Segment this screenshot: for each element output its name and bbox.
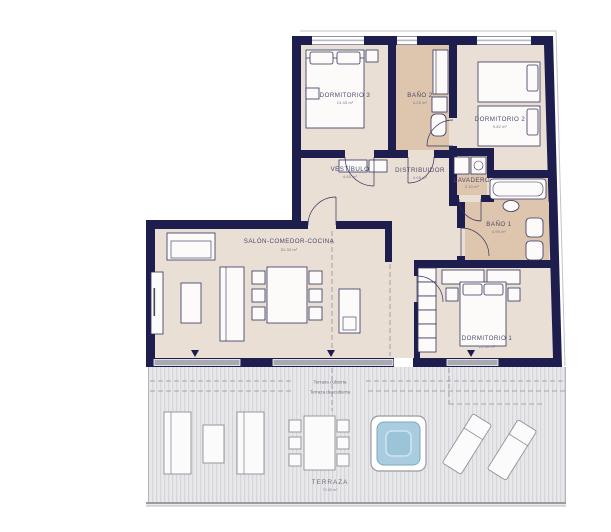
tv-icon [154,288,156,316]
terrace-front-edge [146,502,566,504]
label-bano-1: BAÑO 1 [486,221,512,228]
floor-plan-page: Terraza cubierta Terraza descubierta [0,0,611,532]
plunge-pool-icon [371,416,426,471]
label-terraza: TERRAZA [312,479,349,486]
nightstand-icon [508,288,520,301]
coffee-table-icon [181,283,201,323]
area-lavadero: 2.10 m² [465,185,480,189]
label-salon: SALÓN-COMEDOR-COCINA [244,238,335,245]
pillow-icon [310,52,333,64]
label-dormitorio-3: DORMITORIO 3 [320,92,371,99]
area-bano-2: 4.25 m² [413,101,428,105]
terrace-covered-label: Terraza cubierta [314,380,347,385]
area-dormitorio-1: 21.60 m² [479,345,496,349]
area-vestibulo: 4.65 m² [343,175,358,179]
nightstand-icon [306,88,319,99]
area-distribuidor: 4.05 m² [413,176,428,180]
label-lavadero: LAVADERO [454,177,490,184]
toilet-icon [431,114,446,136]
outdoor-side-table-icon [203,425,224,463]
pillow-icon [463,284,482,295]
area-salon: 51.33 m² [281,248,298,252]
tv-sideboard-icon [151,272,163,334]
console-cabinet-icon [369,160,387,172]
pillow-icon [337,52,360,64]
washing-machine-icon [471,157,486,174]
terrace-uncovered-label: Terraza descubierta [310,390,351,395]
area-dormitorio-2: 9.82 m² [493,125,508,129]
outdoor-sofa-icon [164,412,191,474]
label-bano-2: BAÑO 2 [407,92,433,99]
shower-icon [433,50,448,94]
pillow-icon [527,109,538,135]
dining-table-icon [267,267,307,323]
area-bano-1: 4.90 m² [492,230,507,234]
nightstand-icon [366,50,378,62]
corridor-terrace-door [394,358,413,367]
sink-icon [432,97,447,112]
pillow-icon [484,284,503,295]
terrace-front-edge-outer [146,505,566,506]
corridor-wardrobe-cells [418,268,436,352]
toilet-icon [526,218,543,237]
label-dormitorio-1: DORMITORIO 1 [462,335,513,342]
outdoor-sofa-icon [237,412,264,474]
laundry-sink-icon [454,157,469,174]
floor-plan-drawing: Terraza cubierta Terraza descubierta [0,0,611,532]
kitchen-island-icon [220,267,244,341]
label-distribuidor: DISTRIBUIDOR [395,167,445,174]
kitchen-cabinet-icon [339,289,360,333]
label-dormitorio-2: DORMITORIO 2 [475,116,526,123]
label-vestibulo: VESTÍBULO [331,166,370,173]
bathroom2-fixtures [431,50,448,136]
sink-icon [503,201,519,212]
area-dormitorio-3: 13.43 m² [337,101,354,105]
bidet-icon [526,241,543,260]
area-terraza: 70.86 m² [323,488,339,492]
nightstand-icon [446,288,458,301]
pillow-icon [527,65,538,91]
outdoor-dining-table-icon [304,416,335,470]
sofa-icon [167,233,215,260]
